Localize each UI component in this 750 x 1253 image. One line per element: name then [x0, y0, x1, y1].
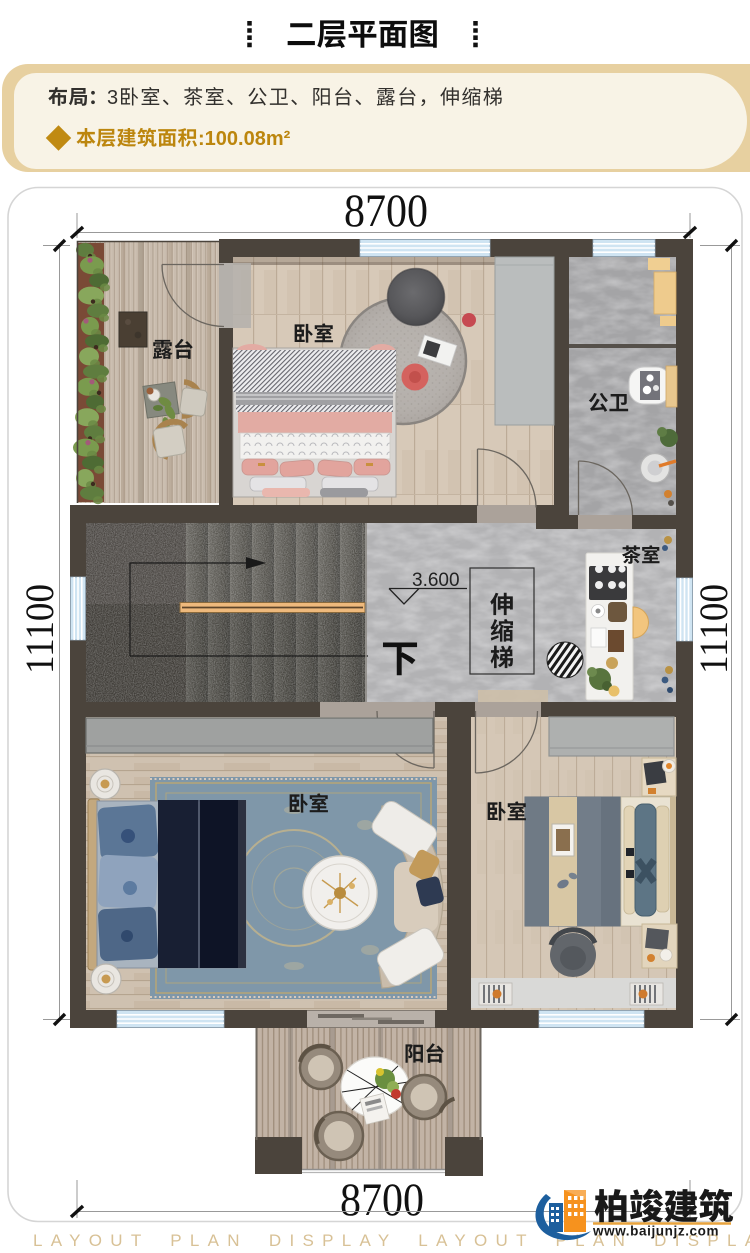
svg-text:8700: 8700 [340, 1174, 424, 1226]
svg-text:8700: 8700 [344, 185, 428, 237]
svg-text:www.baijunjz.com: www.baijunjz.com [592, 1224, 719, 1239]
svg-text::100.08m²: :100.08m² [198, 128, 291, 150]
svg-text:11100: 11100 [691, 584, 736, 674]
svg-text:3: 3 [107, 87, 118, 109]
svg-text:11100: 11100 [17, 584, 62, 674]
